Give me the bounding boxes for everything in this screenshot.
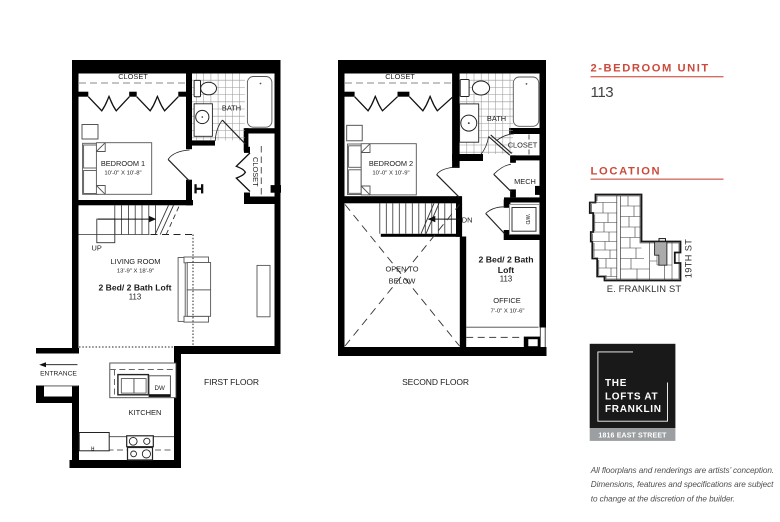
svg-text:OPEN TO: OPEN TO [386, 265, 419, 274]
svg-text:DW: DW [155, 385, 165, 392]
svg-text:CLOSET: CLOSET [508, 141, 538, 150]
svg-text:LOCATION: LOCATION [591, 166, 662, 178]
svg-text:W/D: W/D [524, 214, 530, 224]
svg-text:to change at the discretion of: to change at the discretion of the build… [591, 494, 735, 503]
svg-text:E. FRANKLIN ST: E. FRANKLIN ST [607, 283, 682, 294]
svg-text:LIVING ROOM: LIVING ROOM [110, 257, 160, 266]
svg-text:Loft: Loft [498, 265, 515, 275]
svg-text:DN: DN [462, 215, 473, 224]
svg-text:R: R [90, 445, 94, 451]
svg-text:10'-0" X 10'-8": 10'-0" X 10'-8" [104, 170, 141, 176]
svg-text:2 Bed/ 2 Bath: 2 Bed/ 2 Bath [478, 255, 533, 265]
svg-text:7'-0" X 10'-6": 7'-0" X 10'-6" [491, 309, 525, 315]
svg-text:BEDROOM 2: BEDROOM 2 [369, 159, 413, 168]
svg-text:19TH ST: 19TH ST [684, 239, 694, 279]
svg-text:BATH: BATH [487, 114, 506, 123]
svg-text:LOFTS AT: LOFTS AT [605, 392, 658, 403]
svg-text:FRANKLIN: FRANKLIN [605, 404, 662, 415]
svg-text:BELOW: BELOW [389, 277, 416, 286]
svg-text:BEDROOM 1: BEDROOM 1 [101, 159, 145, 168]
svg-text:113: 113 [500, 275, 512, 284]
svg-text:CLOSET: CLOSET [251, 157, 260, 187]
svg-text:BATH: BATH [222, 104, 241, 113]
svg-text:113: 113 [591, 84, 614, 101]
svg-text:2-BEDROOM UNIT: 2-BEDROOM UNIT [591, 63, 710, 75]
svg-text:13'-9" X 18'-9": 13'-9" X 18'-9" [117, 268, 154, 274]
svg-text:MECH: MECH [514, 177, 536, 186]
svg-text:All floorplans and renderings: All floorplans and renderings are artist… [590, 466, 774, 475]
svg-text:KITCHEN: KITCHEN [129, 408, 162, 417]
svg-text:1816 EAST STREET: 1816 EAST STREET [598, 432, 667, 439]
svg-text:SECOND FLOOR: SECOND FLOOR [402, 377, 469, 387]
svg-text:10'-0" X 10'-9": 10'-0" X 10'-9" [372, 170, 409, 176]
svg-text:UP: UP [92, 244, 102, 253]
svg-text:Dimensions, features and speci: Dimensions, features and specifications … [591, 480, 774, 489]
svg-text:THE: THE [605, 378, 627, 389]
svg-text:OFFICE: OFFICE [493, 296, 521, 305]
svg-text:ENTRANCE: ENTRANCE [40, 371, 77, 378]
svg-text:113: 113 [129, 292, 141, 301]
svg-text:2 Bed/ 2 Bath Loft: 2 Bed/ 2 Bath Loft [98, 283, 171, 293]
svg-text:FIRST FLOOR: FIRST FLOOR [204, 377, 259, 387]
